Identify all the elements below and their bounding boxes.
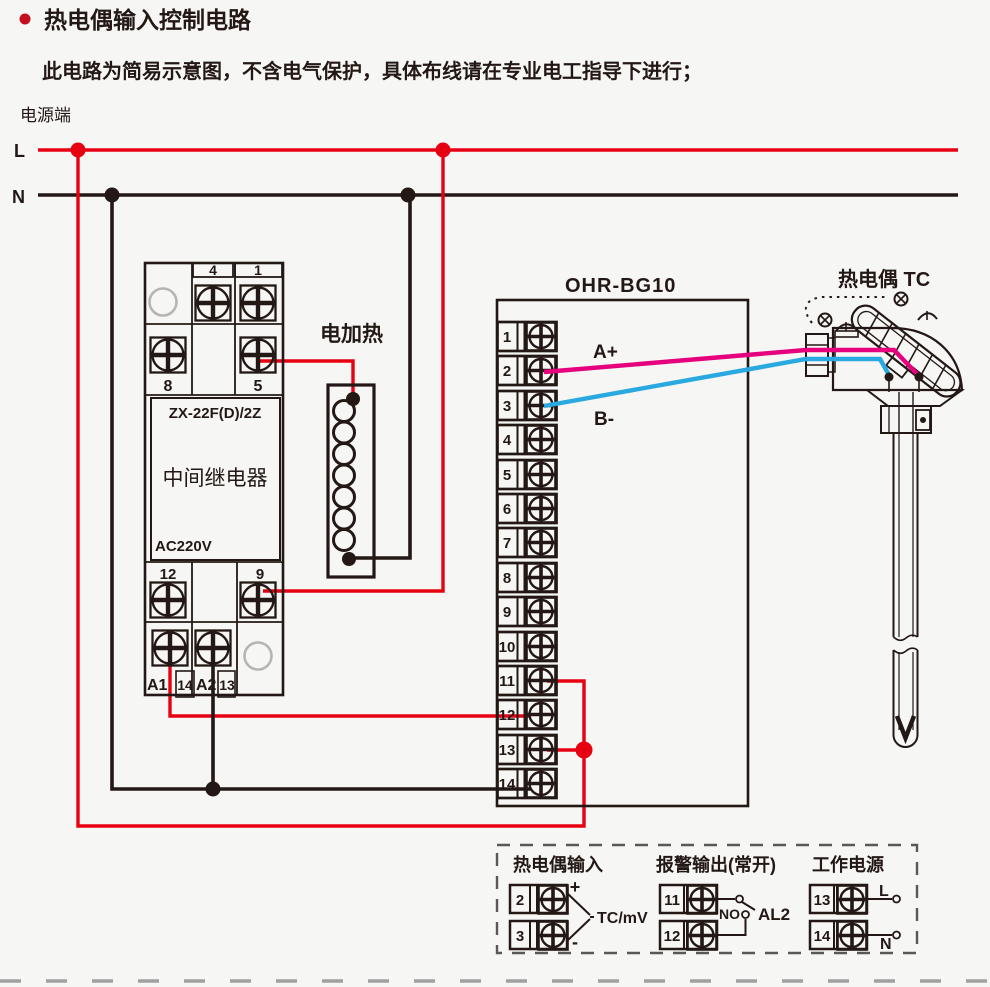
relay-terminal-12: 12 — [160, 566, 177, 583]
relay-terminal-4: 4 — [209, 262, 217, 278]
relay-indicator — [150, 289, 177, 316]
legend-power-n: N — [880, 936, 892, 953]
page-subtitle: 此电路为简易示意图，不含电气保护，具体布线请在专业电工指导下进行； — [42, 59, 702, 83]
power-terminal-label: 电源端 — [20, 106, 71, 125]
heater-label: 电加热 — [320, 322, 383, 346]
strip-terminal-13: 13 — [499, 742, 516, 759]
strip-terminal-2: 2 — [503, 363, 511, 380]
wire-a-plus-label: A+ — [593, 342, 618, 363]
relay-terminal-9: 9 — [256, 566, 264, 583]
relay-screw-9 — [241, 583, 276, 618]
legend-power-l: L — [879, 883, 889, 900]
relay-screw-5 — [241, 338, 276, 373]
header: 热电偶输入控制电路 此电路为简易示意图，不含电气保护，具体布线请在专业电工指导下… — [20, 7, 703, 83]
contact-point — [893, 896, 900, 903]
contact-point — [742, 911, 749, 918]
instrument-ohr-bg10: OHR-BG10 1 2 3 4 5 6 7 8 9 10 11 12 13 1… — [497, 275, 748, 806]
strip-terminal-11: 11 — [499, 673, 515, 690]
legend-terminal-2: 2 — [516, 892, 524, 909]
legend-tc-signal: TC/mV — [597, 910, 648, 927]
relay-screw-a1 — [153, 631, 188, 666]
relay-terminal-13: 13 — [219, 677, 235, 693]
measuring-junction-icon — [897, 716, 914, 738]
legend-alarm-title: 报警输出(常开) — [656, 854, 776, 875]
relay-terminal-1: 1 — [254, 262, 262, 278]
thermocouple-label: 热电偶 TC — [838, 267, 930, 291]
junction-dot — [576, 742, 593, 759]
contact-point — [893, 932, 900, 939]
heater-terminal-bottom — [342, 552, 356, 566]
legend-terminal-11: 11 — [664, 892, 680, 909]
relay-terminal-8: 8 — [164, 378, 173, 395]
strip-terminal-8: 8 — [503, 570, 511, 587]
legend-tc-title: 热电偶输入 — [513, 854, 603, 875]
legend-terminal-3: 3 — [516, 928, 524, 945]
instrument-model: OHR-BG10 — [565, 275, 676, 297]
relay-screw-a2 — [196, 631, 231, 666]
strip-terminal-10: 10 — [499, 639, 516, 656]
intermediate-relay: 4 1 8 5 ZX-22F(D)/2Z 中间继电器 AC220V 12 9 A… — [145, 262, 283, 697]
legend-alarm-output: 报警输出(常开) 11 12 NO AL2 — [656, 854, 790, 950]
legend-tc-input: 热电偶输入 2 3 + - TC/mV — [510, 854, 648, 952]
page-title: 热电偶输入控制电路 — [44, 7, 252, 33]
legend-power-title: 工作电源 — [812, 854, 884, 875]
bullet-icon — [20, 14, 31, 25]
relay-terminal-a1: A1 — [147, 677, 168, 694]
head-funnel — [867, 390, 962, 406]
legend-terminal-13: 13 — [814, 892, 831, 909]
legend-alarm-contact: NO — [719, 906, 740, 922]
strip-terminal-14: 14 — [499, 776, 516, 793]
relay-terminal-14: 14 — [177, 677, 193, 693]
relay-name: 中间继电器 — [163, 467, 268, 490]
junction-dot — [206, 782, 221, 797]
strip-terminal-6: 6 — [503, 501, 511, 518]
line-n-label: N — [12, 187, 25, 207]
eye-screw-icon — [895, 293, 938, 321]
polarity-plus: + — [570, 877, 581, 897]
terminal-strip: 1 2 3 4 5 6 7 8 9 10 11 12 13 14 — [498, 322, 557, 798]
strip-terminal-1: 1 — [503, 329, 511, 346]
strip-terminal-9: 9 — [503, 604, 511, 621]
contact-point — [736, 896, 743, 903]
thermocouple-cap — [840, 300, 965, 409]
legend-terminal-12: 12 — [664, 928, 681, 945]
relay-terminal-5: 5 — [254, 378, 263, 395]
legend-alarm-name: AL2 — [758, 905, 790, 924]
strip-terminal-3: 3 — [503, 398, 511, 415]
thermocouple: 热电偶 TC — [806, 267, 966, 747]
strip-terminal-5: 5 — [503, 467, 511, 484]
relay-screw-12 — [151, 583, 186, 618]
heater-terminal-top — [346, 392, 360, 406]
relay-screw-4 — [196, 286, 231, 321]
wire-b-minus-label: B- — [594, 409, 614, 430]
legend-terminal-14: 14 — [814, 928, 831, 945]
relay-screw-1 — [241, 286, 276, 321]
hex-fitting — [806, 334, 828, 376]
probe-sheath — [894, 433, 918, 747]
line-l-label: L — [14, 141, 25, 161]
strip-terminal-4: 4 — [503, 432, 512, 449]
strip-terminal-12: 12 — [499, 707, 516, 724]
power-rails: 电源端 L N — [12, 106, 958, 207]
legend: 热电偶输入 2 3 + - TC/mV 报警输出(常开) 11 12 — [497, 845, 917, 953]
legend-working-power: 工作电源 13 14 L N — [810, 854, 900, 953]
relay-voltage: AC220V — [155, 538, 212, 555]
wiring-diagram: 热电偶输入控制电路 此电路为简易示意图，不含电气保护，具体布线请在专业电工指导下… — [0, 0, 990, 987]
relay-screw-8 — [151, 338, 186, 373]
strip-terminal-7: 7 — [503, 535, 511, 552]
relay-terminal-a2: A2 — [196, 677, 217, 694]
relay-indicator — [245, 643, 272, 670]
relay-model: ZX-22F(D)/2Z — [169, 405, 262, 422]
switch-blade — [742, 902, 755, 910]
